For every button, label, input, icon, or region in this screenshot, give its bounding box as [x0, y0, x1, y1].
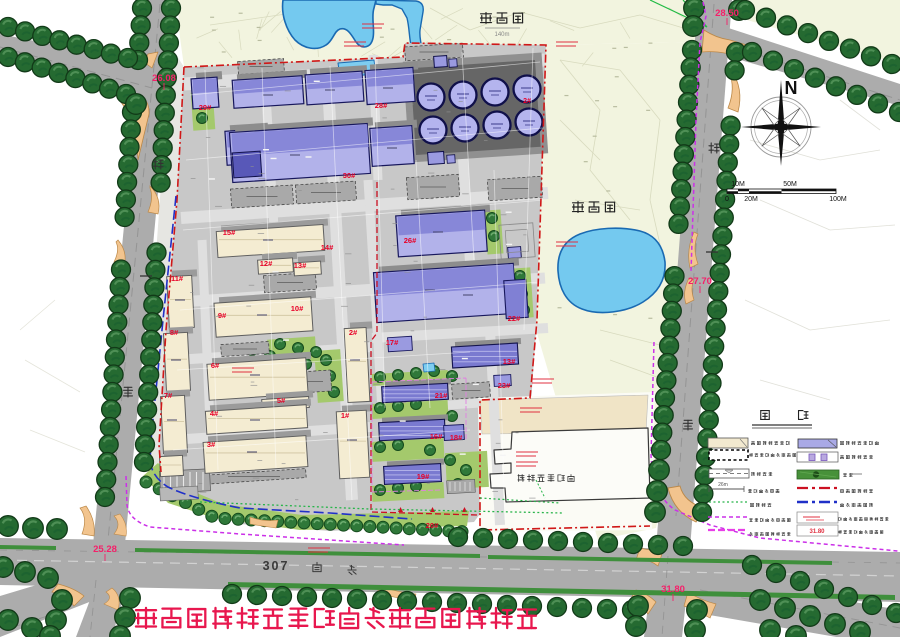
svg-text:50M: 50M	[783, 181, 797, 188]
svg-text:9#: 9#	[218, 311, 227, 320]
svg-text:14#: 14#	[321, 243, 334, 252]
svg-text:19#: 19#	[417, 472, 430, 481]
svg-text:2#: 2#	[523, 98, 531, 105]
svg-text:17#: 17#	[386, 338, 399, 347]
svg-text:100M: 100M	[829, 196, 847, 203]
svg-text:22#: 22#	[508, 314, 521, 323]
svg-text:20M: 20M	[744, 196, 758, 203]
svg-text:16#: 16#	[430, 432, 443, 441]
svg-text:0: 0	[725, 196, 729, 203]
svg-text:29#: 29#	[199, 103, 212, 112]
svg-text:26#: 26#	[404, 236, 417, 245]
svg-text:15#: 15#	[223, 228, 236, 237]
svg-text:2#: 2#	[349, 328, 358, 337]
svg-text:307: 307	[263, 559, 290, 573]
svg-text:3#: 3#	[207, 440, 216, 449]
svg-text:11#: 11#	[171, 274, 184, 283]
svg-text:25.28: 25.28	[93, 544, 117, 555]
svg-text:23#: 23#	[498, 381, 511, 390]
svg-text:4#: 4#	[210, 409, 219, 418]
svg-text:20#: 20#	[426, 521, 439, 530]
svg-text:26m: 26m	[718, 482, 728, 488]
svg-text:N: N	[785, 78, 798, 98]
svg-text:10#: 10#	[291, 304, 304, 313]
svg-text:5#: 5#	[277, 396, 286, 405]
svg-text:28#: 28#	[375, 101, 388, 110]
svg-text:28.50: 28.50	[715, 8, 739, 19]
svg-text:21#: 21#	[435, 391, 448, 400]
svg-text:27.70: 27.70	[688, 276, 712, 287]
svg-text:13#: 13#	[503, 357, 516, 366]
svg-text:31.80: 31.80	[809, 529, 825, 535]
svg-text:1#: 1#	[341, 411, 350, 420]
svg-text:10M: 10M	[731, 181, 745, 188]
svg-text:8#: 8#	[170, 328, 179, 337]
svg-text:7#: 7#	[164, 391, 173, 400]
svg-text:30#: 30#	[343, 171, 356, 180]
svg-text:26.08: 26.08	[152, 73, 176, 84]
svg-text:18#: 18#	[450, 433, 463, 442]
svg-text:140m: 140m	[494, 32, 509, 38]
svg-text:13#: 13#	[294, 261, 307, 270]
svg-text:6#: 6#	[211, 361, 220, 370]
svg-text:12#: 12#	[260, 259, 273, 268]
svg-text:31.80: 31.80	[661, 584, 685, 595]
